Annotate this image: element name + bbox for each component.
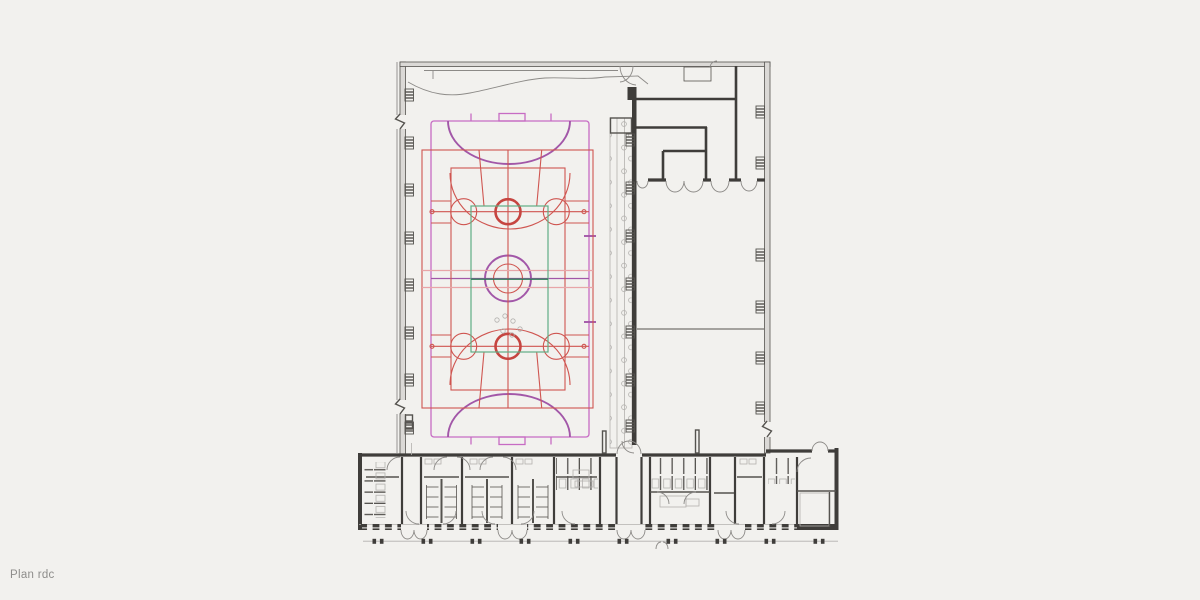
wc-cubicles (651, 458, 709, 490)
volleyball-court (471, 206, 548, 352)
porch-step-marks (656, 542, 668, 549)
wc-cubicles (556, 458, 598, 490)
handball-goal-south (499, 437, 525, 445)
block-south-doors (637, 180, 765, 192)
wing-west-wall (358, 453, 362, 530)
curtain-divider-line (408, 76, 648, 95)
upper-right-rooms (636, 61, 765, 329)
stair (800, 493, 829, 526)
door-swing-arc (620, 66, 636, 85)
bench-group (427, 479, 457, 523)
wall-stub (696, 430, 700, 453)
hall-east-wall (765, 62, 771, 453)
wall-break-symbols (393, 114, 775, 437)
wing-south-facade (359, 524, 836, 539)
hall-north-wall (400, 62, 770, 67)
wc-cubicles (768, 458, 795, 484)
plan-title: Plan rdc (10, 569, 55, 581)
handball-goal-north (499, 114, 525, 122)
floor-plan-page: Plan rdc (0, 0, 1200, 600)
door-swing-arc (812, 442, 828, 451)
wall-stub (603, 431, 607, 453)
wc-cubicles (365, 462, 386, 518)
west-wall-columns (405, 89, 414, 434)
east-wall-columns (756, 106, 765, 414)
spectator-stand (610, 66, 637, 453)
wing-partitions (402, 457, 797, 524)
floor-plan-drawing (0, 0, 1200, 600)
terrace-edge (363, 539, 838, 544)
court-markings (422, 114, 596, 445)
bench-group (472, 479, 502, 523)
equipment-box (406, 415, 413, 421)
stair (684, 67, 711, 81)
wing-east-wall (835, 448, 839, 530)
